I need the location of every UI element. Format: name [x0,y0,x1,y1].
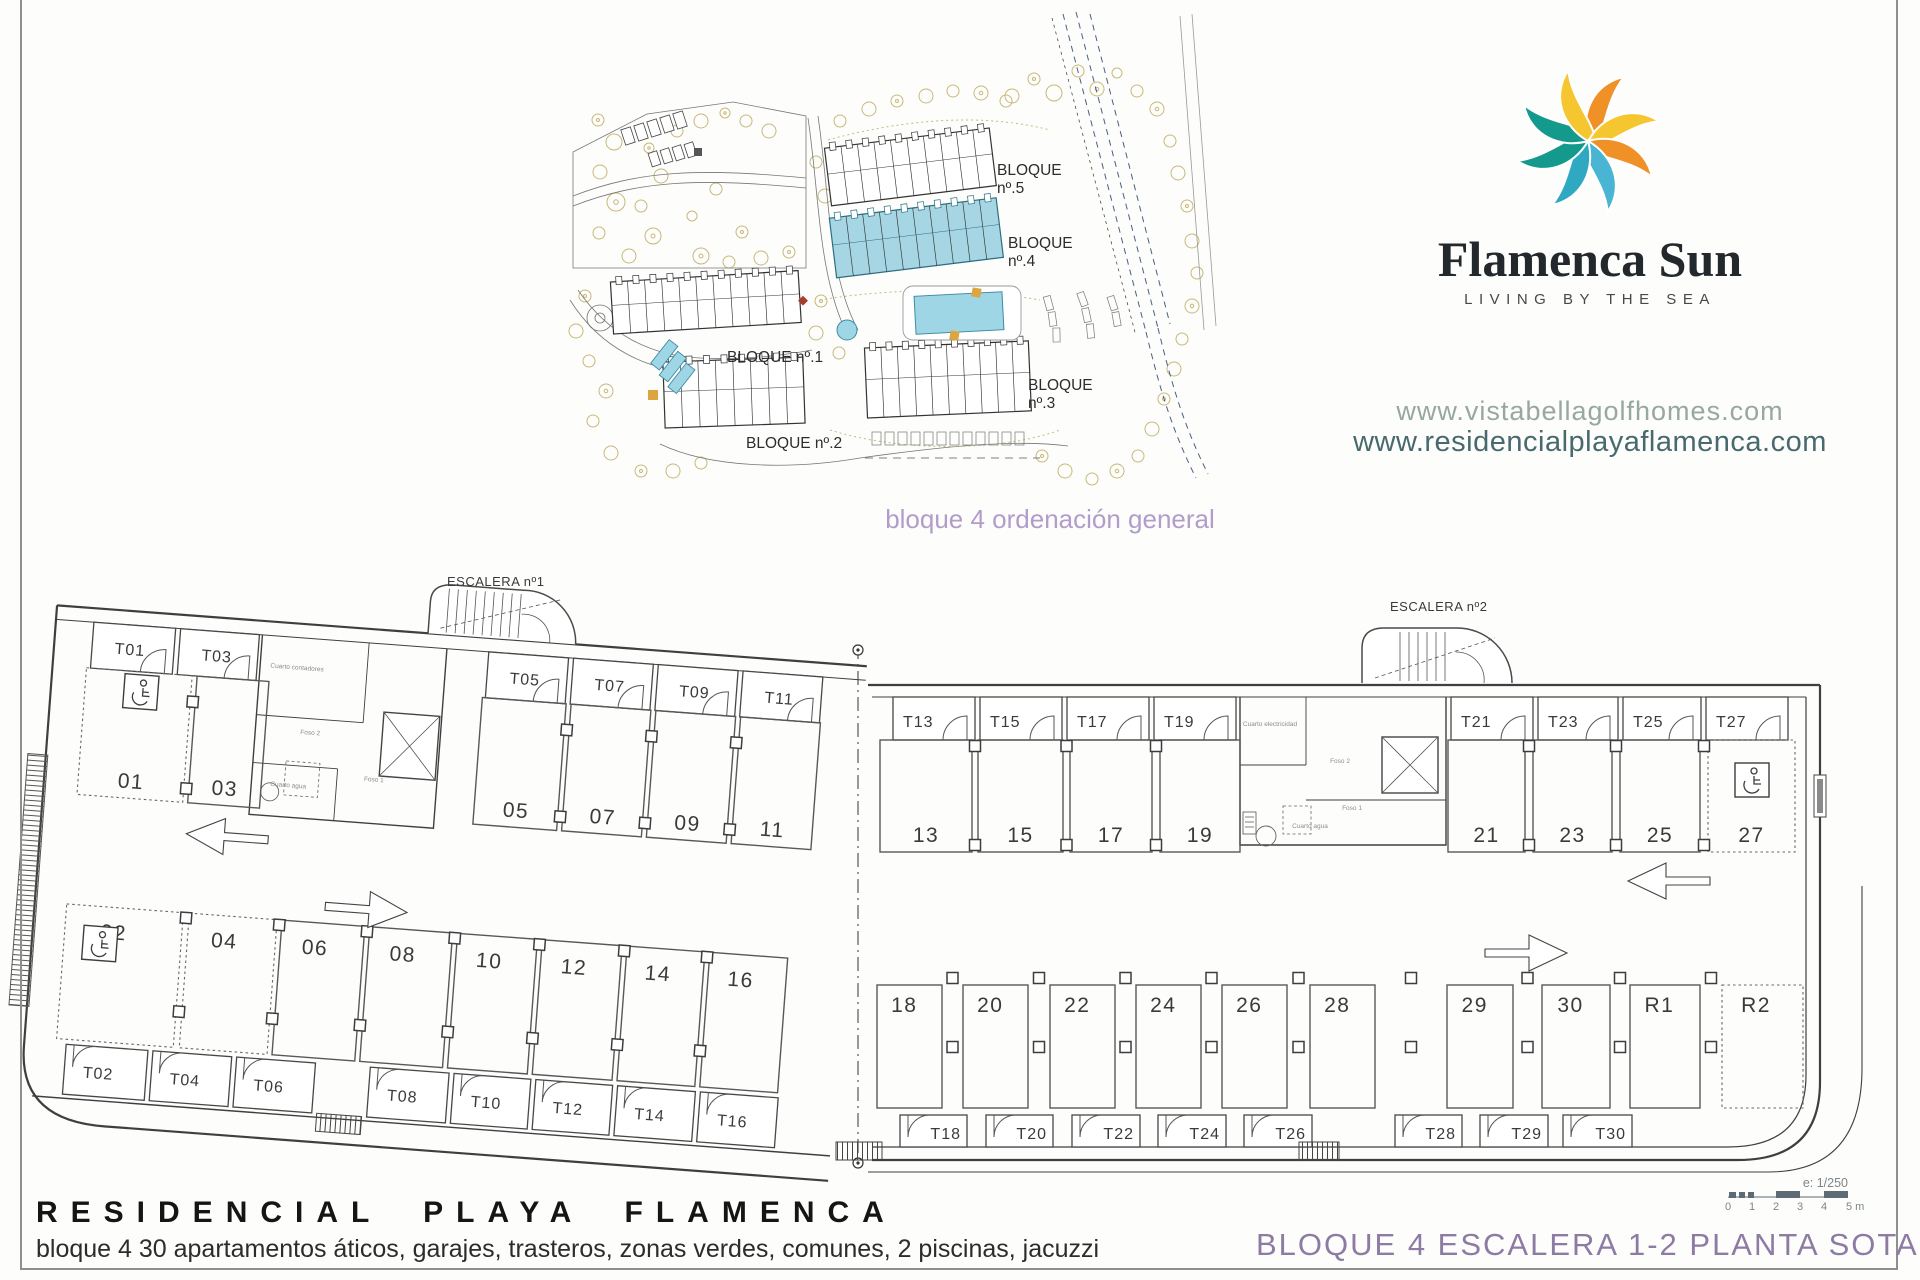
storage-number-T22: T22 [1103,1126,1134,1143]
page-border-left [20,0,22,1270]
project-title: RESIDENCIAL PLAYA FLAMENCA [36,1196,897,1230]
storage-number-T08: T08 [386,1088,418,1107]
parking-number-13: 13 [913,824,939,847]
scale-tick: 1 [1749,1201,1755,1213]
storage-number-T03: T03 [201,647,233,666]
scale-bar: e: 1/250 012345 m [1725,1176,1864,1213]
page-border-right [1896,0,1898,1270]
parking-number-29: 29 [1462,994,1488,1017]
parking-number-05: 05 [502,798,530,823]
parking-number-12: 12 [560,955,588,980]
site-plan-caption: bloque 4 ordenación general [878,504,1222,535]
storage-number-T15: T15 [990,714,1021,731]
parking-number-22: 22 [1064,994,1090,1017]
storage-number-T02: T02 [82,1065,114,1084]
storage-number-T10: T10 [470,1094,502,1113]
site-block-label: BLOQUEnº.3 [1028,377,1093,412]
parking-number-24: 24 [1150,994,1176,1017]
parking-number-25: 25 [1647,824,1673,847]
storage-number-T29: T29 [1511,1126,1542,1143]
project-subtitle: bloque 4 30 apartamentos áticos, garajes… [36,1235,1099,1264]
site-block-4 [829,193,1004,278]
storage-number-T19: T19 [1164,714,1195,731]
scale-tick: 4 [1821,1201,1827,1213]
site-block-1 [610,266,801,334]
brand-tagline: LIVING BY THE SEA [1370,291,1810,308]
site-marker [648,390,658,400]
parking-number-R2: R2 [1741,994,1771,1017]
parking-number-18: 18 [891,994,917,1017]
parking-number-20: 20 [977,994,1003,1017]
storage-number-T25: T25 [1633,714,1664,731]
staircase-1-label: ESCALERA nº1 [447,574,544,589]
parking-number-14: 14 [644,961,672,986]
storage-number-T17: T17 [1077,714,1108,731]
tech-room-label: Cuarto electricidad [1243,721,1298,728]
direction-arrow-left [1628,863,1710,899]
parking-number-01: 01 [117,769,145,794]
brand-name: Flamenca Sun [1370,230,1810,288]
tech-room-label: Cuarto contadores [270,663,325,674]
section-line [836,645,882,1168]
parking-number-08: 08 [389,942,417,967]
storage-number-T16: T16 [716,1112,748,1131]
storage-number-T30: T30 [1595,1126,1626,1143]
storage-number-T11: T11 [764,690,795,709]
parking-number-28: 28 [1324,994,1350,1017]
tech-room-label: Foso 1 [1342,805,1362,812]
storage-number-T05: T05 [509,671,541,690]
site-block-label: BLOQUE nº.2 [746,435,842,452]
parking-number-16: 16 [727,968,755,993]
parking-number-27: 27 [1738,824,1764,847]
storage-number-T18: T18 [930,1126,961,1143]
website-link-secondary: www.residencialplayaflamenca.com [1290,426,1890,459]
scale-tick: 3 [1797,1201,1803,1213]
parking-number-R1: R1 [1644,994,1674,1017]
parking-number-04: 04 [210,929,238,954]
site-block-label: BLOQUEnº.5 [997,162,1062,197]
ramp [9,754,48,1007]
storage-number-T20: T20 [1016,1126,1047,1143]
parking-number-09: 09 [673,811,701,836]
parking-number-17: 17 [1098,824,1124,847]
right-wing: T13T15T17T19T21T23T25T271315171921232527… [868,628,1862,1172]
brand-logo-pinwheel [1513,66,1663,216]
parking-number-06: 06 [301,936,329,961]
storage-number-T06: T06 [253,1077,285,1096]
site-block-5 [824,123,996,206]
staircase-2 [1362,628,1512,683]
parking-number-30: 30 [1557,994,1583,1017]
storage-number-T07: T07 [594,677,626,696]
storage-number-T27: T27 [1716,714,1747,731]
site-garages [621,111,702,167]
parking-number-11: 11 [759,818,785,843]
parking-number-03: 03 [211,777,239,802]
elevator-1 [379,712,440,780]
scale-tick: 0 [1725,1201,1731,1213]
direction-arrow-left [185,816,269,858]
page-border-bottom [20,1268,1898,1270]
brochure-page: BLOQUEnº.5BLOQUEnº.4BLOQUEnº.3BLOQUE nº.… [0,0,1920,1280]
scale-label: e: 1/250 [1803,1176,1848,1190]
site-plan: BLOQUEnº.5BLOQUEnº.4BLOQUEnº.3BLOQUE nº.… [569,12,1216,485]
storage-number-T12: T12 [552,1100,584,1119]
parking-number-19: 19 [1187,824,1213,847]
tech-room-label: Foso 2 [1330,758,1350,765]
storage-number-T26: T26 [1275,1126,1306,1143]
parking-number-15: 15 [1007,824,1033,847]
scale-tick: 5 m [1846,1201,1864,1213]
website-link-primary: www.vistabellagolfhomes.com [1290,396,1890,427]
storage-number-T14: T14 [634,1106,666,1125]
scale-tick: 2 [1773,1201,1779,1213]
parking-number-26: 26 [1236,994,1262,1017]
parking-number-07: 07 [589,805,617,830]
gate-hatch [315,1113,361,1134]
tech-room-label: Foso 1 [364,776,385,784]
site-block-label: BLOQUE nº.1 [727,349,823,366]
storage-number-T09: T09 [678,683,710,702]
gate-hatch [1299,1142,1339,1160]
storage-number-T28: T28 [1425,1126,1456,1143]
tech-room-label: Foso 2 [300,729,321,737]
direction-arrow-right [1485,935,1567,971]
storage-number-T24: T24 [1189,1126,1220,1143]
storage-number-T04: T04 [169,1071,201,1090]
gate-hatch [836,1142,882,1160]
tech-room-label: Cuarto agua [1292,823,1328,830]
site-block-3 [864,336,1031,418]
left-wing: T01T03T05T07T09T110103050709110204060810… [0,554,870,1181]
staircase-2-label: ESCALERA nº2 [1390,599,1487,614]
tech-room-label: Cuarto agua [270,781,307,791]
storage-number-T21: T21 [1461,714,1492,731]
site-pool-round [837,320,857,340]
elevator-2 [1382,737,1438,793]
site-pool-main [914,292,1004,335]
storage-number-T13: T13 [903,714,934,731]
storage-number-T23: T23 [1548,714,1579,731]
storage-number-T01: T01 [114,641,146,660]
parking-number-10: 10 [475,949,503,974]
plan-sheet-title: BLOQUE 4 ESCALERA 1-2 PLANTA SOTANO [1256,1227,1874,1263]
site-block-label: BLOQUEnº.4 [1008,235,1073,270]
parking-number-23: 23 [1559,824,1585,847]
parking-number-21: 21 [1473,824,1499,847]
